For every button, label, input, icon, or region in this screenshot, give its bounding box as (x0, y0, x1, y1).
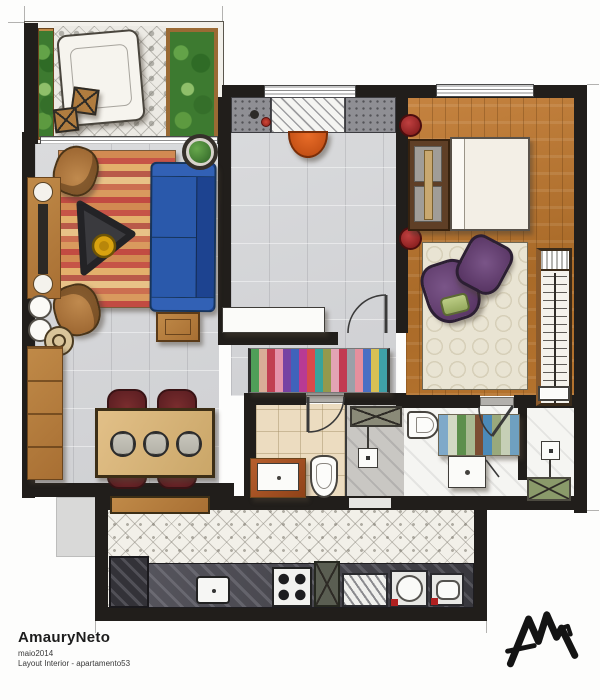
door-swings-overlay (0, 0, 600, 700)
pencil-line-4 (587, 84, 599, 85)
pencil-line-1 (24, 6, 25, 21)
pencil-line-3 (8, 22, 24, 23)
artwork-caption: Layout Interior - apartamento53 (18, 659, 130, 669)
am-logo-icon (502, 600, 586, 680)
artist-name: AmauryNeto (18, 629, 130, 646)
pencil-line-2 (222, 6, 223, 21)
signature-block: AmauryNeto maio2014 Layout Interior - ap… (18, 629, 130, 669)
pencil-line-5 (587, 510, 599, 511)
artwork-date: maio2014 (18, 649, 130, 659)
pencil-line-6 (486, 621, 487, 633)
floor-plan-artwork: AmauryNeto maio2014 Layout Interior - ap… (0, 0, 600, 700)
